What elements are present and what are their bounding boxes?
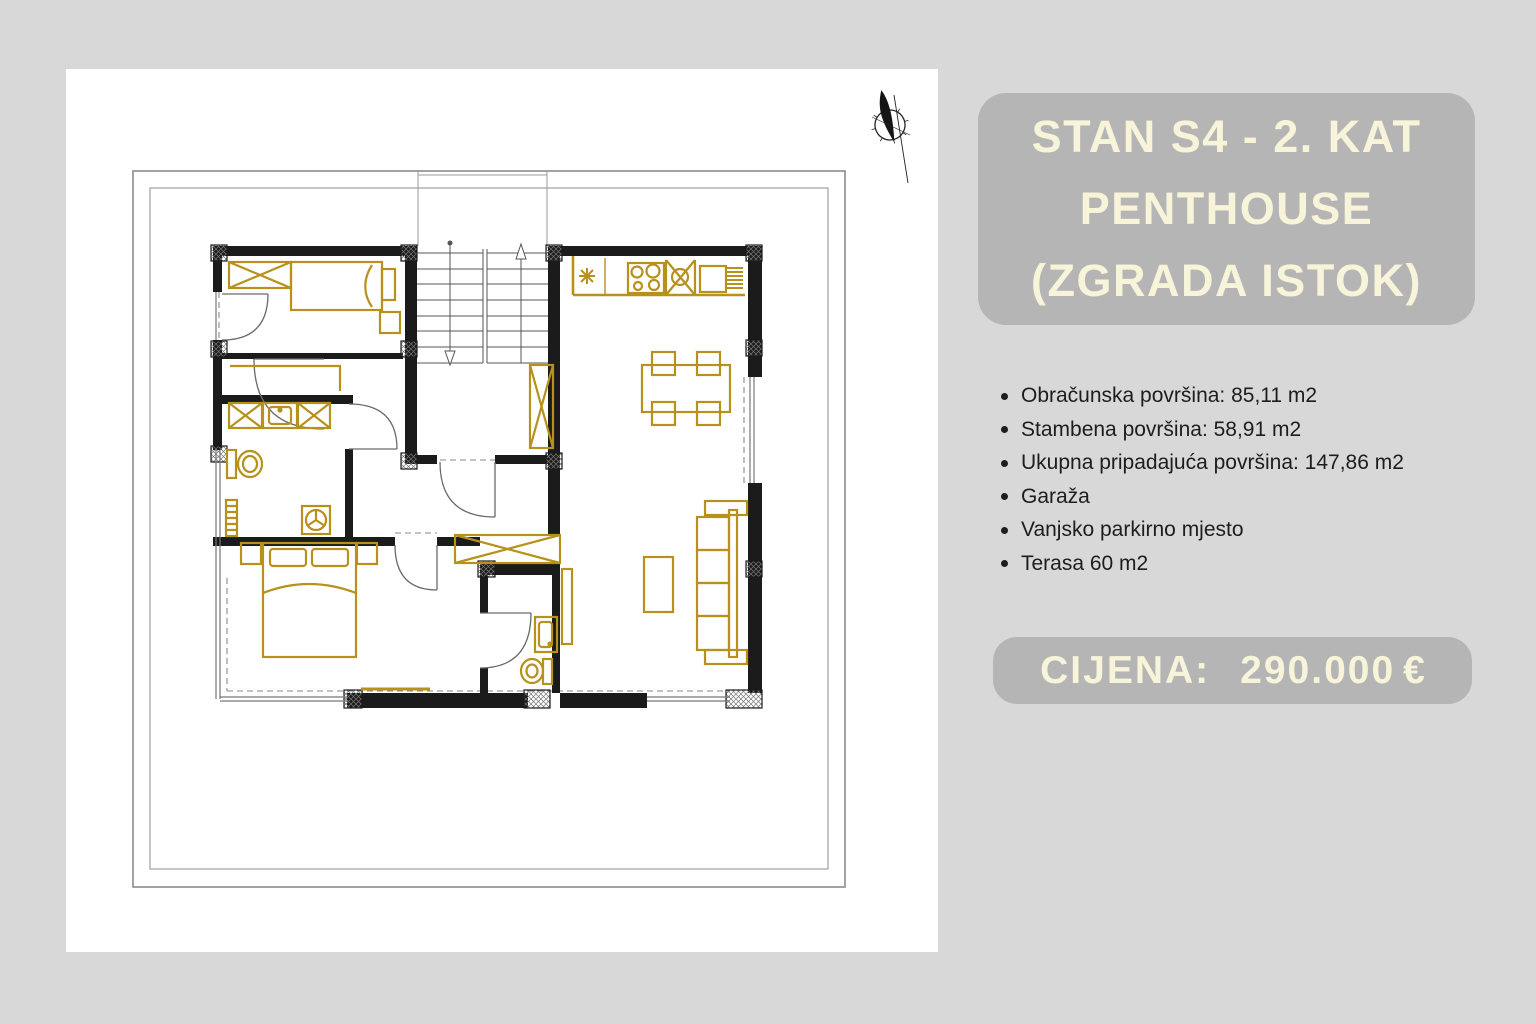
feature-text: Stambena površina: 58,91 m2 <box>1021 418 1301 442</box>
nightstand <box>241 543 261 564</box>
terrace-boundary <box>133 171 845 887</box>
bathroom-toilet <box>227 450 262 478</box>
feature-item: Garaža <box>1001 485 1481 509</box>
feature-item: Vanjsko parkirno mjesto <box>1001 518 1481 542</box>
feature-item: Obračunska površina: 85,11 m2 <box>1001 384 1481 408</box>
nightstand <box>357 543 377 564</box>
feature-item: Stambena površina: 58,91 m2 <box>1001 418 1481 442</box>
feature-text: Terasa 60 m2 <box>1021 552 1148 576</box>
closet-counter <box>230 366 340 391</box>
coffee-table <box>644 557 673 612</box>
price-currency: € <box>1403 649 1425 693</box>
fridge-shelves <box>727 268 743 288</box>
stove <box>628 263 664 293</box>
price-banner: CIJENA: 290.000 € <box>993 637 1472 704</box>
price-label: CIJENA: <box>1040 649 1210 693</box>
feature-text: Vanjsko parkirno mjesto <box>1021 518 1244 542</box>
price-value: 290.000 <box>1240 649 1395 693</box>
feature-text: Obračunska površina: 85,11 m2 <box>1021 384 1317 408</box>
radiator <box>226 500 237 536</box>
feature-text: Ukupna pripadajuća površina: 147,86 m2 <box>1021 451 1404 475</box>
stair-down-start <box>448 241 452 245</box>
floor-plan <box>66 69 938 952</box>
title-line-2: PENTHOUSE <box>1080 173 1374 245</box>
feature-text: Garaža <box>1021 485 1090 509</box>
bullet-icon <box>1001 460 1008 467</box>
bullet-icon <box>1001 493 1008 500</box>
bullet-icon <box>1001 560 1008 567</box>
kitchen-counter <box>573 256 745 295</box>
oven <box>700 266 726 292</box>
title-line-1: STAN S4 - 2. KAT <box>1032 101 1422 173</box>
dining-set <box>642 352 730 425</box>
feature-item: Terasa 60 m2 <box>1001 552 1481 576</box>
single-bed <box>291 262 400 333</box>
double-bed <box>241 543 377 657</box>
tv-bench <box>562 569 572 644</box>
wc-toilet <box>521 659 552 684</box>
washing-machine <box>302 506 330 534</box>
bedroom1-wardrobe <box>229 262 291 288</box>
title-line-3: (ZGRADA ISTOK) <box>1031 245 1422 317</box>
compass-icon <box>863 85 913 183</box>
bullet-icon <box>1001 426 1008 433</box>
bathroom-vanity <box>229 403 330 428</box>
floor-plan-panel <box>66 69 938 952</box>
kitchen-sink <box>666 260 695 295</box>
sink-symbol-asterisk <box>579 268 595 284</box>
sofa <box>697 501 747 664</box>
stairwell <box>417 241 548 365</box>
listing-title: STAN S4 - 2. KAT PENTHOUSE (ZGRADA ISTOK… <box>978 93 1475 325</box>
hall-wardrobe <box>455 535 560 563</box>
nightstand <box>380 312 400 333</box>
feature-list: Obračunska površina: 85,11 m2 Stambena p… <box>1001 384 1481 585</box>
bullet-icon <box>1001 527 1008 534</box>
bullet-icon <box>1001 393 1008 400</box>
feature-item: Ukupna pripadajuća površina: 147,86 m2 <box>1001 451 1481 475</box>
